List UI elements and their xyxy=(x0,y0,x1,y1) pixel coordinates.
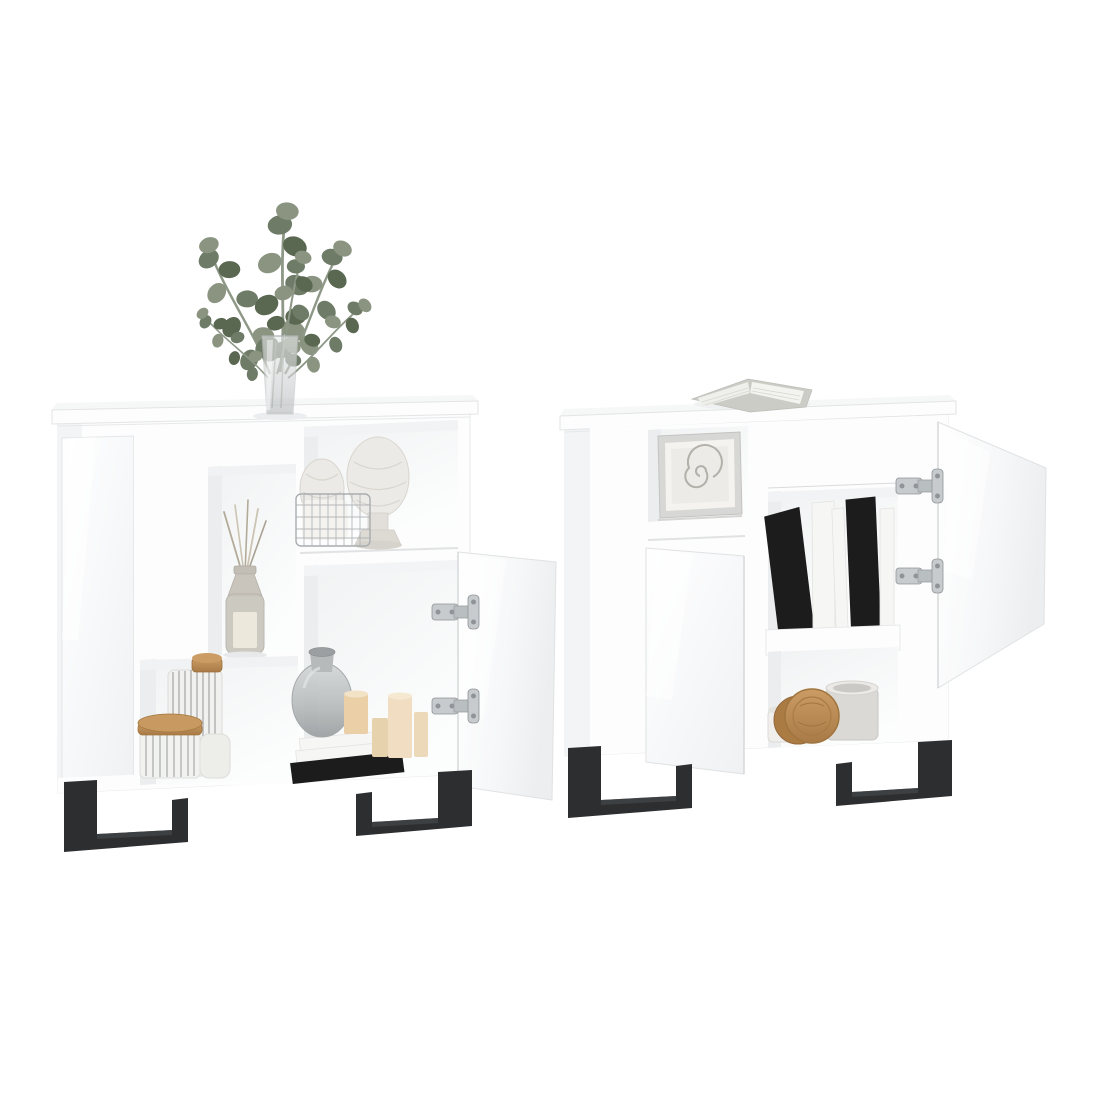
box-wood-lid-top xyxy=(138,714,202,732)
short-striped-box xyxy=(138,714,202,778)
diffuser-label xyxy=(233,612,257,648)
jar-cork-top xyxy=(192,653,222,663)
right-cabinet-side-panel xyxy=(565,417,590,756)
bottom-left-cube xyxy=(138,653,298,785)
book-row xyxy=(764,497,894,634)
white-vessel xyxy=(200,734,230,778)
framed-ammonite-print xyxy=(658,432,742,520)
niche-left-wall-shadow xyxy=(208,466,222,656)
diffuser-niche xyxy=(208,464,296,659)
scene-canvas xyxy=(0,0,1100,1100)
bottom-right-compartment xyxy=(289,560,458,784)
frame-compartment xyxy=(648,426,748,522)
right-cabinet-open-left-door xyxy=(646,548,744,774)
basket-contents xyxy=(302,500,348,540)
diffuser-cap xyxy=(234,566,256,574)
books-compartment xyxy=(764,487,900,655)
mug-compartment xyxy=(768,647,898,748)
product-photo xyxy=(0,0,1100,1100)
glass-vase xyxy=(262,336,298,414)
